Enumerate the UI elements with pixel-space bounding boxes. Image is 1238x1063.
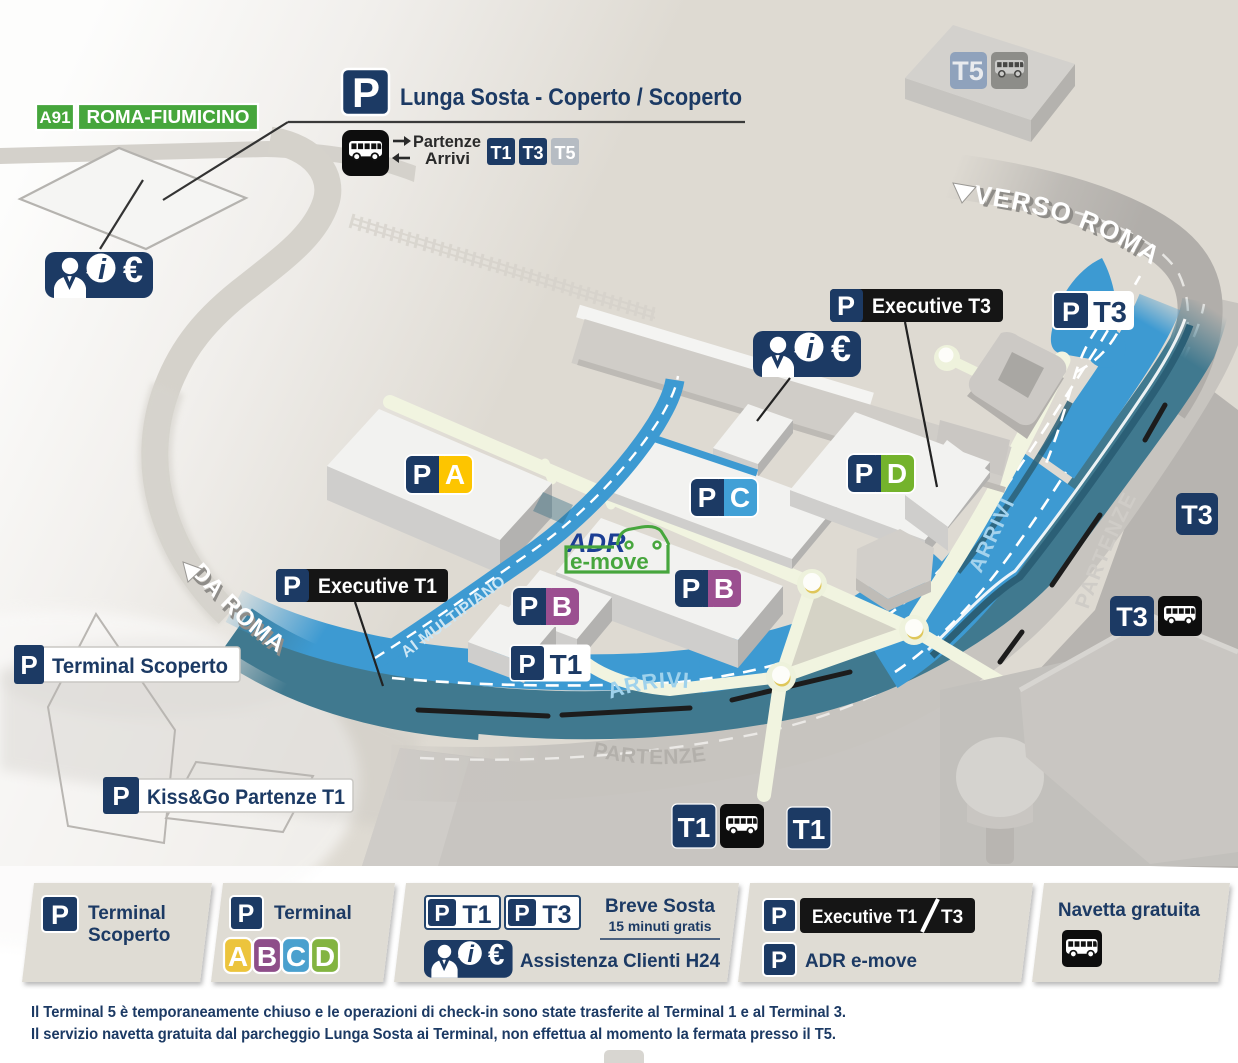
- svg-text:T3: T3: [1093, 297, 1127, 329]
- svg-text:15 minuti gratis: 15 minuti gratis: [609, 918, 712, 934]
- svg-text:T5: T5: [952, 56, 984, 86]
- svg-text:A: A: [228, 941, 248, 972]
- svg-text:Terminal Scoperto: Terminal Scoperto: [52, 655, 228, 678]
- svg-text:A91: A91: [39, 108, 70, 127]
- svg-text:Executive T1: Executive T1: [812, 907, 917, 928]
- svg-text:P: P: [352, 69, 380, 116]
- svg-text:P: P: [682, 573, 701, 604]
- svg-text:Partenze: Partenze: [413, 133, 481, 151]
- svg-text:Kiss&Go Partenze T1: Kiss&Go Partenze T1: [147, 786, 345, 809]
- svg-text:B: B: [714, 573, 734, 604]
- svg-text:ROMA-FIUMICINO: ROMA-FIUMICINO: [87, 106, 250, 127]
- svg-text:T1: T1: [462, 901, 491, 929]
- svg-text:P: P: [518, 649, 535, 679]
- svg-text:Il Terminal 5 è temporaneament: Il Terminal 5 è temporaneamente chiuso e…: [31, 1004, 846, 1021]
- svg-text:P: P: [283, 571, 301, 601]
- svg-text:P: P: [238, 900, 255, 928]
- svg-text:T3: T3: [1181, 500, 1213, 530]
- svg-text:P: P: [112, 781, 129, 811]
- svg-text:T3: T3: [522, 143, 543, 163]
- svg-text:B: B: [257, 941, 277, 972]
- svg-text:P: P: [520, 591, 539, 622]
- svg-text:Arrivi: Arrivi: [425, 150, 470, 168]
- svg-text:P: P: [51, 900, 69, 930]
- svg-text:Il servizio navetta gratuita d: Il servizio navetta gratuita dal parcheg…: [31, 1026, 836, 1043]
- svg-text:P: P: [837, 291, 855, 321]
- svg-text:Terminal: Terminal: [274, 903, 352, 924]
- svg-text:P: P: [855, 458, 874, 489]
- svg-text:Executive T1: Executive T1: [318, 575, 437, 598]
- svg-text:T5: T5: [554, 143, 575, 163]
- svg-text:T3: T3: [542, 901, 571, 929]
- svg-text:P: P: [20, 650, 37, 680]
- svg-text:P: P: [434, 900, 449, 926]
- svg-text:T1: T1: [678, 812, 711, 843]
- svg-text:T3: T3: [941, 907, 963, 928]
- svg-text:T1: T1: [793, 814, 826, 845]
- svg-text:P: P: [698, 482, 717, 513]
- svg-text:ADR e-move: ADR e-move: [805, 950, 917, 972]
- svg-text:P: P: [771, 947, 787, 974]
- svg-text:Lunga Sosta - Coperto / Scope: Lunga Sosta - Coperto / Scoperto: [400, 84, 742, 111]
- svg-text:T3: T3: [1116, 602, 1148, 632]
- svg-text:Assistenza Clienti H24: Assistenza Clienti H24: [520, 951, 720, 972]
- svg-text:T1: T1: [550, 649, 583, 680]
- svg-text:T1: T1: [490, 143, 511, 163]
- svg-text:Navetta gratuita: Navetta gratuita: [1058, 899, 1200, 921]
- svg-text:P: P: [413, 459, 432, 490]
- svg-text:P: P: [514, 900, 529, 926]
- svg-text:D: D: [887, 458, 907, 489]
- svg-text:P: P: [1062, 297, 1080, 327]
- svg-text:Breve Sosta: Breve Sosta: [605, 895, 715, 917]
- svg-text:Scoperto: Scoperto: [88, 925, 170, 946]
- svg-text:B: B: [552, 591, 572, 622]
- svg-text:D: D: [315, 941, 335, 972]
- svg-text:C: C: [730, 482, 750, 513]
- svg-text:e-move: e-move: [570, 549, 649, 574]
- svg-text:A: A: [445, 459, 465, 490]
- svg-text:C: C: [286, 941, 306, 972]
- svg-text:Executive T3: Executive T3: [872, 295, 991, 318]
- svg-text:Terminal: Terminal: [88, 903, 166, 924]
- svg-text:P: P: [771, 903, 787, 930]
